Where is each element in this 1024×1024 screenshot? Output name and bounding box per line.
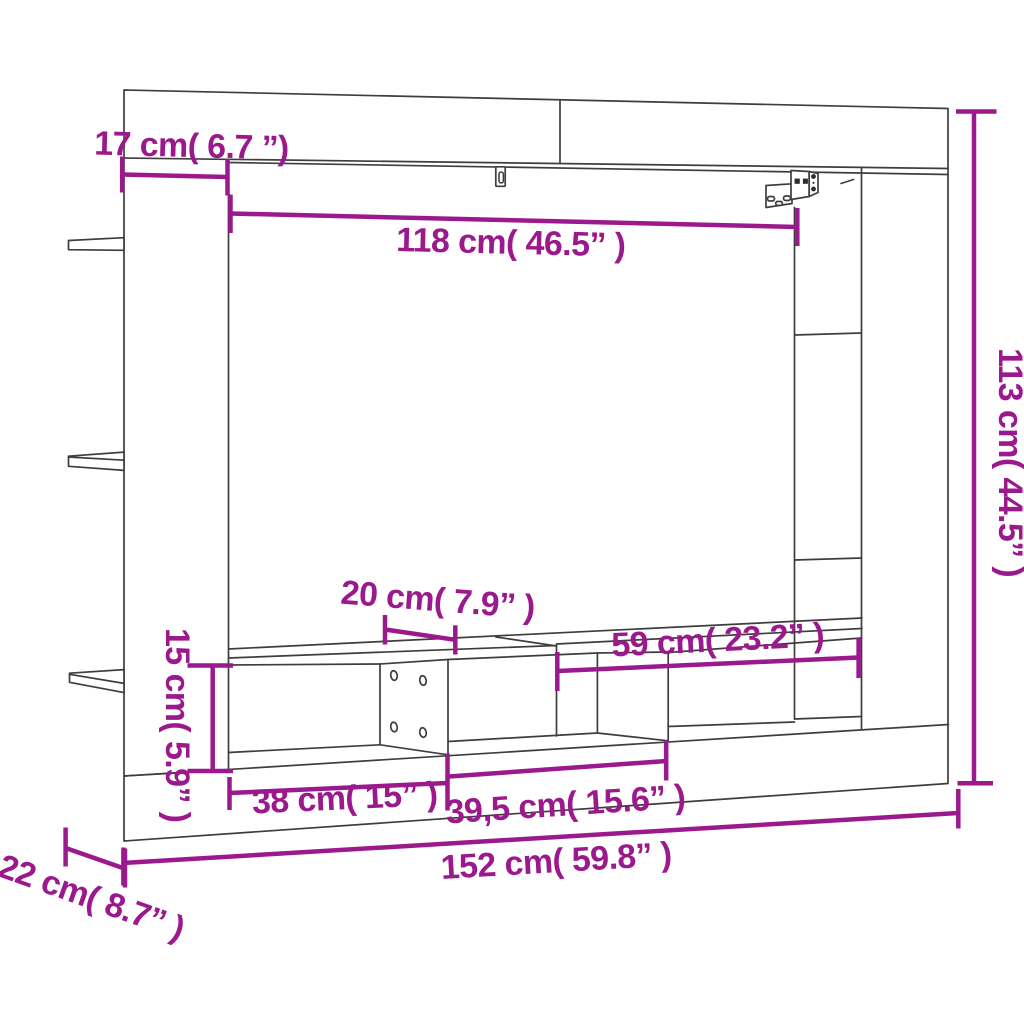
svg-text:17 cm( 6.7 ”): 17 cm( 6.7 ”) [94, 125, 289, 168]
svg-text:15 cm( 5.9” ): 15 cm( 5.9” ) [158, 628, 196, 822]
svg-text:118 cm( 46.5” ): 118 cm( 46.5” ) [396, 221, 626, 265]
svg-text:113 cm( 44.5” ): 113 cm( 44.5” ) [991, 348, 1024, 577]
